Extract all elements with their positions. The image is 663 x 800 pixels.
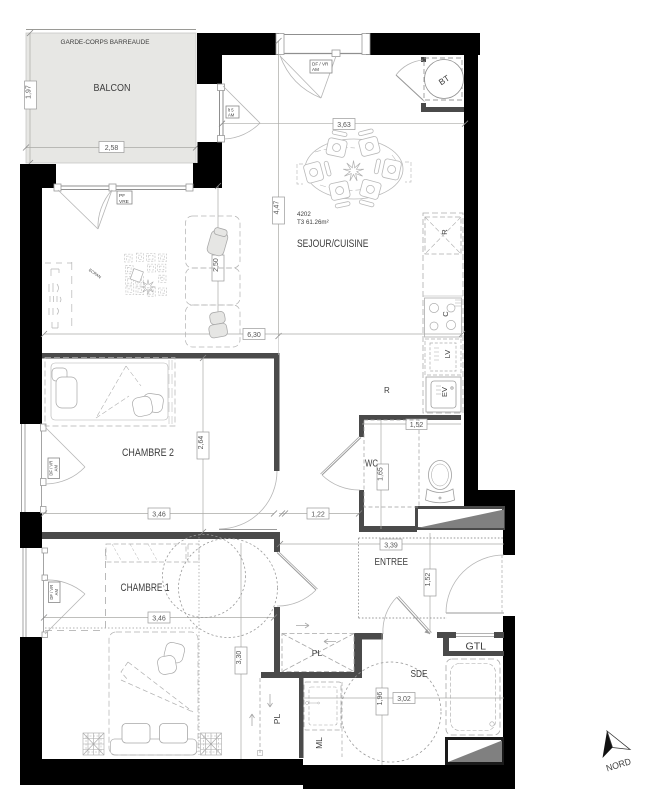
svg-text:4202: 4202 — [297, 211, 311, 218]
svg-text:3,46: 3,46 — [152, 512, 166, 519]
svg-text:AM: AM — [53, 465, 58, 472]
svg-text:3,02: 3,02 — [397, 696, 411, 703]
svg-text:CHAMBRE 2: CHAMBRE 2 — [122, 447, 174, 459]
svg-text:C: C — [441, 311, 450, 317]
svg-text:AM: AM — [54, 589, 59, 596]
svg-text:2,58: 2,58 — [105, 145, 119, 152]
svg-text:3,39: 3,39 — [384, 543, 398, 550]
svg-text:WC: WC — [365, 459, 378, 470]
svg-text:GTL: GTL — [466, 641, 487, 653]
svg-text:1,65: 1,65 — [378, 467, 385, 481]
svg-text:R: R — [440, 229, 449, 235]
svg-text:1,22: 1,22 — [311, 512, 325, 519]
svg-text:DF / VR: DF / VR — [312, 62, 329, 67]
svg-text:SEJOUR/CUISINE: SEJOUR/CUISINE — [297, 238, 369, 250]
svg-text:4,47: 4,47 — [274, 201, 281, 215]
svg-text:PF: PF — [119, 193, 125, 199]
svg-text:3,46: 3,46 — [152, 616, 166, 623]
svg-text:CHAMBRE 1: CHAMBRE 1 — [121, 582, 170, 594]
svg-text:2,50: 2,50 — [213, 258, 220, 272]
svg-text:1,52: 1,52 — [425, 573, 432, 587]
svg-text:2,64: 2,64 — [198, 436, 205, 450]
svg-text:ML: ML — [314, 737, 324, 749]
svg-text:PL: PL — [312, 648, 323, 658]
svg-text:VRE: VRE — [119, 199, 129, 205]
svg-text:3,63: 3,63 — [337, 122, 351, 129]
svg-text:BALCON: BALCON — [94, 83, 131, 94]
svg-text:LV: LV — [443, 350, 452, 359]
svg-text:1,96: 1,96 — [377, 692, 384, 706]
svg-text:PL: PL — [272, 714, 282, 725]
svg-text:GARDE-CORPS BARREAUDE: GARDE-CORPS BARREAUDE — [61, 39, 150, 46]
svg-text:3,30: 3,30 — [236, 651, 243, 665]
svg-text:EV: EV — [440, 387, 449, 397]
svg-text:1,97: 1,97 — [26, 85, 33, 99]
svg-text:ENTREE: ENTREE — [375, 556, 409, 568]
svg-text:AM: AM — [312, 67, 319, 72]
svg-text:SDE: SDE — [411, 669, 428, 680]
svg-text:T3 61.26m²: T3 61.26m² — [297, 219, 329, 226]
svg-text:AM: AM — [228, 113, 235, 118]
svg-text:1,52: 1,52 — [410, 422, 424, 429]
svg-text:6,30: 6,30 — [247, 332, 261, 339]
svg-text:R: R — [384, 386, 390, 395]
